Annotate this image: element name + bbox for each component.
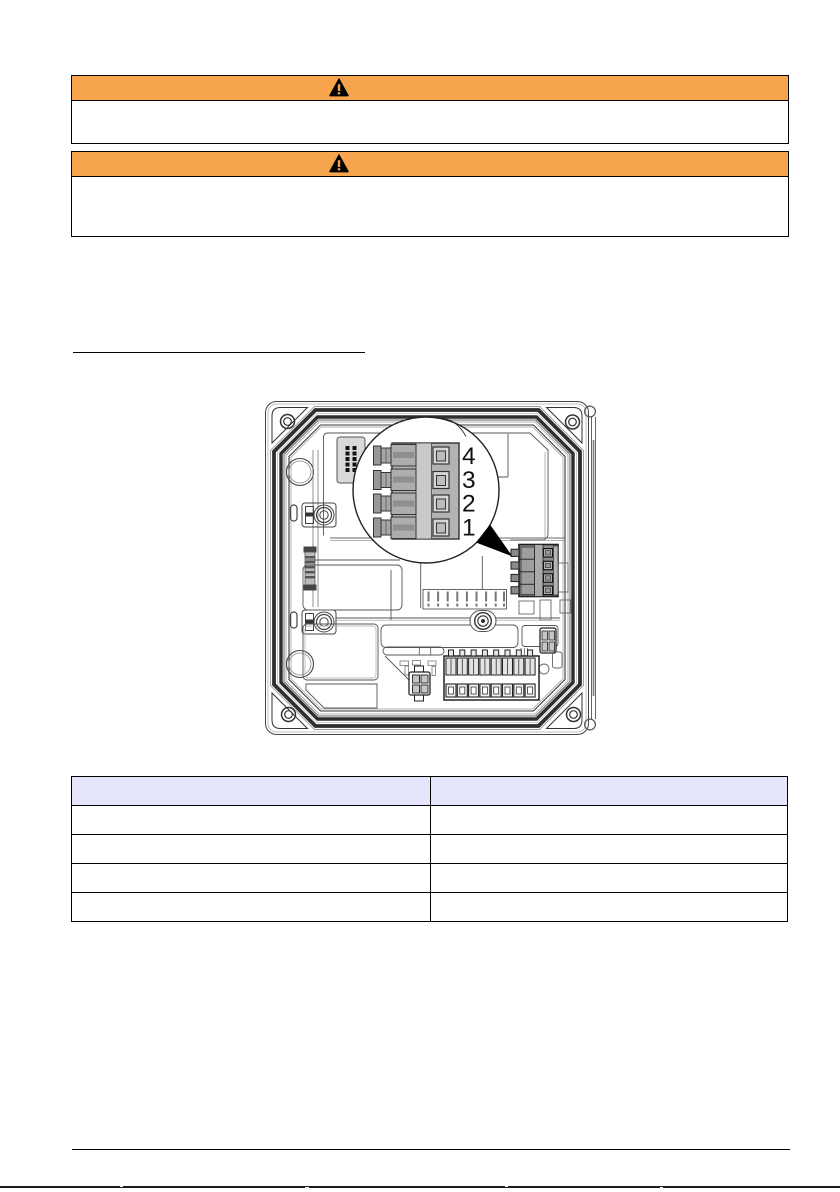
svg-text:2: 2 <box>462 491 476 518</box>
svg-text:4: 4 <box>462 443 476 470</box>
svg-text:1: 1 <box>462 515 476 542</box>
